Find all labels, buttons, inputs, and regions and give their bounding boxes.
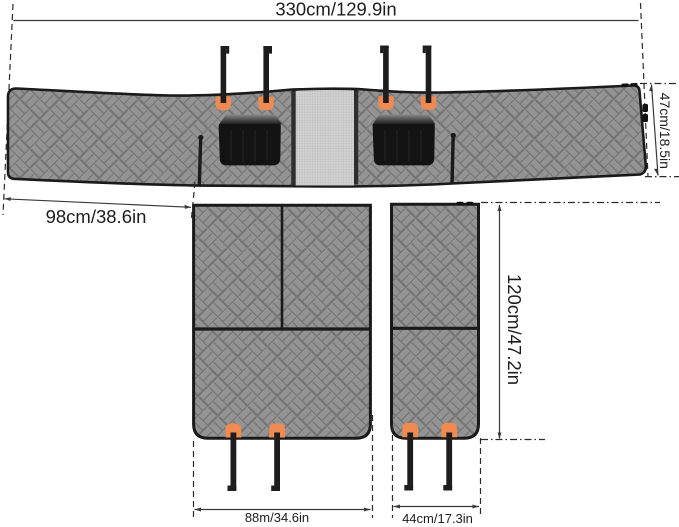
svg-text:120cm/47.2in: 120cm/47.2in bbox=[504, 274, 525, 385]
svg-text:44cm/17.3in: 44cm/17.3in bbox=[402, 511, 473, 526]
svg-text:98cm/38.6in: 98cm/38.6in bbox=[46, 206, 147, 227]
svg-text:88m/34.6in: 88m/34.6in bbox=[245, 510, 309, 525]
svg-text:47cm/18.5in: 47cm/18.5in bbox=[657, 93, 673, 169]
svg-text:330cm/129.9in: 330cm/129.9in bbox=[275, 0, 396, 20]
